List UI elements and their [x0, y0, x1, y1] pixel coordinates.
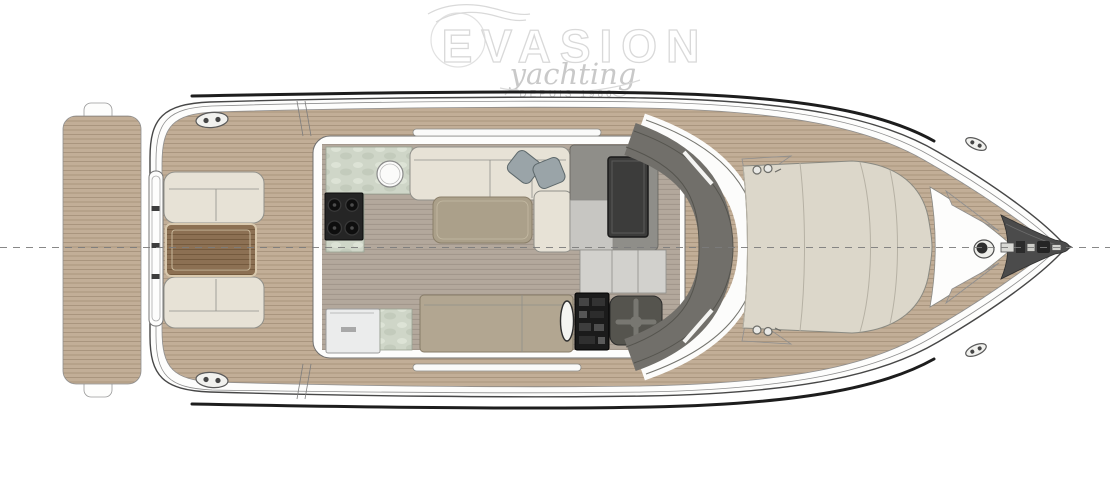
swim-platform: [63, 116, 141, 384]
cooktop: [325, 193, 363, 240]
deck-vent: [764, 328, 772, 336]
cockpit-bench-starboard: [164, 277, 264, 328]
salon-sideboard: [420, 295, 573, 352]
bow-cleat-starboard: [964, 341, 988, 359]
cockpit-table: [166, 224, 256, 276]
wet-bar-counter: [380, 309, 412, 350]
salon: [313, 129, 685, 371]
salon-table: [433, 197, 532, 243]
bow-cleat-port: [964, 135, 988, 153]
transom-gate: [149, 171, 163, 326]
watermark: EVASION yachting DEPUIS 1986: [428, 5, 708, 100]
gate-hinge: [152, 206, 160, 211]
deck-vent: [764, 165, 772, 173]
deck-vent: [753, 166, 761, 174]
galley-sink: [377, 161, 403, 187]
helm-screen: [608, 157, 648, 237]
roof-rail-bottom: [413, 364, 581, 371]
deck-vent: [753, 326, 761, 334]
yacht-deck-plan: EVASION yachting DEPUIS 1986: [0, 0, 1110, 500]
dash-panel-lower: [570, 200, 613, 250]
companionway-steps: [580, 250, 666, 293]
cockpit-bench-port: [164, 172, 264, 223]
wet-bar-label: [341, 327, 356, 332]
roof-rail-top: [413, 129, 601, 136]
salon-sofa-return: [534, 191, 572, 252]
gate-hinge: [152, 274, 160, 279]
steering-wheel: [561, 301, 574, 341]
aft-cockpit: [149, 171, 264, 328]
helm-instrument-cluster: [575, 293, 609, 350]
